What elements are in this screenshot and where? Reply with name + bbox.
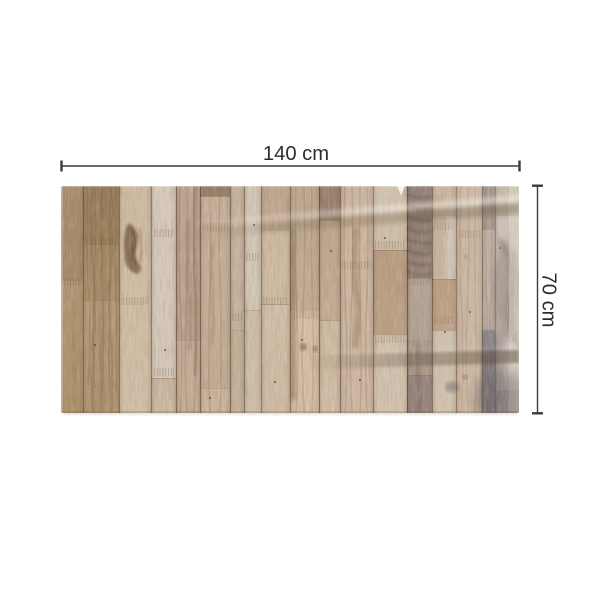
svg-text:140 cm: 140 cm: [263, 143, 329, 165]
svg-text:70 cm: 70 cm: [538, 273, 560, 328]
